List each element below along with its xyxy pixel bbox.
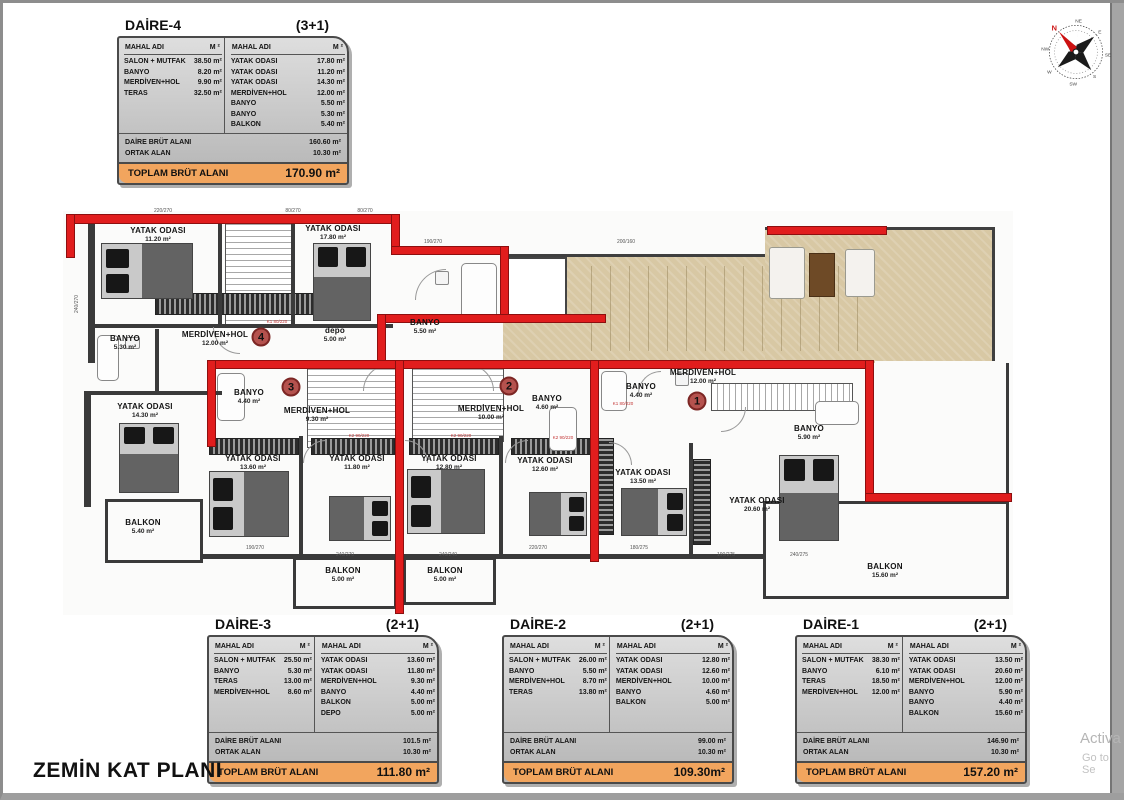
room-label: YATAK ODASI12.80 m² <box>421 455 476 471</box>
ortak-label: ORTAK ALAN <box>215 747 261 758</box>
col-header-unit: M ² <box>595 643 605 650</box>
bed <box>621 488 687 536</box>
compass-nw-label: NW <box>1041 47 1049 53</box>
table-totals: DAİRE BRÜT ALANI101.5 m² ORTAK ALAN10.30… <box>209 732 437 761</box>
table-row: MERDİVEN+HOL12.00 m² <box>909 677 1023 688</box>
red-wall-segment <box>866 361 873 501</box>
room-label: YATAK ODASI17.80 m² <box>305 225 360 241</box>
room-label: MERDİVEN+HOL10.00 m² <box>458 405 524 421</box>
toplam-value: 170.90 m² <box>285 166 340 180</box>
red-wall-segment <box>67 215 74 257</box>
table-row: TERAS18.50 m² <box>802 677 900 688</box>
room-label: depo5.00 m² <box>324 327 346 343</box>
unit-number-badge: 3 <box>282 378 301 397</box>
compass-s-label: S <box>1093 74 1096 80</box>
door-arc <box>721 407 746 432</box>
outdoor-sofa <box>845 249 875 297</box>
dimension-label: 190/270 <box>424 239 442 245</box>
bed <box>407 469 485 534</box>
table-row: BALKON5.00 m² <box>616 698 730 709</box>
wall-segment <box>499 436 503 556</box>
brut-label: DAİRE BRÜT ALANI <box>125 137 191 148</box>
bed <box>529 492 587 536</box>
balcony-5-00-a <box>293 557 397 609</box>
col-header-name: MAHAL ADI <box>803 643 842 650</box>
wall-segment <box>291 217 295 327</box>
bed <box>329 496 391 541</box>
table-row: SALON + MUTFAK38.50 m² <box>124 57 222 68</box>
table-rows: YATAK ODASI13.50 m²YATAK ODASI20.60 m²ME… <box>909 654 1023 732</box>
unit-number-badge: 1 <box>688 392 707 411</box>
room-label: MERDİVEN+HOL12.00 m² <box>670 369 736 385</box>
table-row: YATAK ODASI14.30 m² <box>231 78 345 89</box>
red-wall-segment <box>591 361 598 561</box>
table-totals: DAİRE BRÜT ALANI99.00 m² ORTAK ALAN10.30… <box>504 732 732 761</box>
table-left-column: MAHAL ADIM ² SALON + MUTFAK26.00 m²BANYO… <box>504 637 609 732</box>
dimension-label: 80/270 <box>285 208 300 214</box>
table-title: DAİRE-4 <box>125 17 181 33</box>
door-spec-label: K2 90/220 <box>451 433 472 438</box>
wall-segment <box>689 443 693 556</box>
table-title-row: DAİRE-1 (2+1) <box>795 616 1027 635</box>
room-label: YATAK ODASI13.60 m² <box>225 455 280 471</box>
table-footer: TOPLAM BRÜT ALANI 109.30m² <box>504 761 732 782</box>
table-row: YATAK ODASI17.80 m² <box>231 57 345 68</box>
col-header-name: MAHAL ADI <box>322 643 361 650</box>
floor-plan-sheet: DAİRE-4 (3+1) MAHAL ADIM ² SALON + MUTFA… <box>0 0 1124 800</box>
table-right-column: MAHAL ADIM ² YATAK ODASI12.80 m²YATAK OD… <box>609 637 732 732</box>
compass-n-label: N <box>1052 24 1057 33</box>
unit-number-badge: 2 <box>500 377 519 396</box>
room-label: YATAK ODASI11.20 m² <box>130 227 185 243</box>
table-left-column: MAHAL ADIM ² SALON + MUTFAK38.50 m²BANYO… <box>119 38 224 133</box>
table-row: YATAK ODASI20.60 m² <box>909 667 1023 678</box>
red-wall-segment <box>501 247 508 322</box>
brut-label: DAİRE BRÜT ALANI <box>510 736 576 747</box>
toplam-label: TOPLAM BRÜT ALANI <box>513 767 613 778</box>
toplam-value: 111.80 m² <box>377 765 430 779</box>
dimension-label: 240/240 <box>439 552 457 558</box>
table-row: SALON + MUTFAK25.50 m² <box>214 656 312 667</box>
table-footer: TOPLAM BRÜT ALANI 170.90 m² <box>119 162 347 183</box>
table-title-row: DAİRE-2 (2+1) <box>502 616 734 635</box>
area-table-daire3: DAİRE-3 (2+1) MAHAL ADIM ² SALON + MUTFA… <box>207 616 439 784</box>
table-row: MERDİVEN+HOL8.70 m² <box>509 677 607 688</box>
table-row: TERAS13.80 m² <box>509 688 607 699</box>
ortak-label: ORTAK ALAN <box>125 148 171 159</box>
table-row: MERDİVEN+HOL9.90 m² <box>124 78 222 89</box>
bed <box>209 471 289 537</box>
table-box: MAHAL ADIM ² SALON + MUTFAK38.30 m²BANYO… <box>795 635 1027 784</box>
table-type: (2+1) <box>974 616 1007 632</box>
door-spec-label: K2 90/220 <box>349 433 370 438</box>
toplam-value: 157.20 m² <box>963 765 1018 779</box>
ortak-label: ORTAK ALAN <box>803 747 849 758</box>
room-label: YATAK ODASI12.60 m² <box>517 457 572 473</box>
compass-w-label: W <box>1047 69 1052 75</box>
table-row: BALKON15.60 m² <box>909 709 1023 720</box>
col-header-name: MAHAL ADI <box>910 643 949 650</box>
table-row: BANYO6.10 m² <box>802 667 900 678</box>
table-box: MAHAL ADIM ² SALON + MUTFAK38.50 m²BANYO… <box>117 36 349 185</box>
table-left-column: MAHAL ADIM ² SALON + MUTFAK38.30 m²BANYO… <box>797 637 902 732</box>
table-box: MAHAL ADIM ² SALON + MUTFAK26.00 m²BANYO… <box>502 635 734 784</box>
wardrobe <box>209 438 299 455</box>
ortak-value: 10.30 m² <box>313 148 341 159</box>
room-label: BANYO4.60 m² <box>532 395 562 411</box>
table-rows: SALON + MUTFAK26.00 m²BANYO5.50 m²MERDİV… <box>509 654 607 732</box>
toplam-value: 109.30m² <box>674 765 725 779</box>
outdoor-sofa <box>769 247 805 299</box>
door-spec-label: K1 80/220 <box>267 319 288 324</box>
bathtub <box>549 407 577 451</box>
dimension-label: 180/275 <box>630 545 648 551</box>
table-footer: TOPLAM BRÜT ALANI 157.20 m² <box>797 761 1025 782</box>
wall-segment <box>203 554 763 559</box>
table-right-column: MAHAL ADIM ² YATAK ODASI13.50 m²YATAK OD… <box>902 637 1025 732</box>
red-wall-segment <box>208 361 215 446</box>
table-rows: SALON + MUTFAK38.30 m²BANYO6.10 m²TERAS1… <box>802 654 900 732</box>
terrace-arm <box>869 363 1009 501</box>
table-row: BANYO5.90 m² <box>909 688 1023 699</box>
door-arc <box>415 269 446 300</box>
table-row: YATAK ODASI12.80 m² <box>616 656 730 667</box>
table-type: (2+1) <box>386 616 419 632</box>
table-right-column: MAHAL ADIM ² YATAK ODASI13.60 m²YATAK OD… <box>314 637 437 732</box>
dimension-label: 190/275 <box>717 552 735 558</box>
room-label: YATAK ODASI11.80 m² <box>329 455 384 471</box>
table-row: YATAK ODASI13.60 m² <box>321 656 435 667</box>
table-row: SALON + MUTFAK38.30 m² <box>802 656 900 667</box>
col-header-unit: M ² <box>718 643 728 650</box>
table-rows: YATAK ODASI17.80 m²YATAK ODASI11.20 m²YA… <box>231 55 345 133</box>
table-type: (3+1) <box>296 17 329 33</box>
dimension-label: 240/270 <box>336 552 354 558</box>
bed <box>119 423 179 493</box>
wall-segment <box>218 217 222 327</box>
room-label: BALKON15.60 m² <box>867 563 902 579</box>
dimension-label: 190/270 <box>246 545 264 551</box>
col-header-unit: M ² <box>1011 643 1021 650</box>
compass-ne-label: NE <box>1075 18 1082 24</box>
table-row: DEPO5.00 m² <box>321 709 435 720</box>
room-label: BALKON5.00 m² <box>427 567 462 583</box>
table-row: BANYO4.40 m² <box>321 688 435 699</box>
wall-segment <box>299 436 303 556</box>
table-footer: TOPLAM BRÜT ALANI 111.80 m² <box>209 761 437 782</box>
wall-segment <box>88 217 95 363</box>
bathtub <box>815 401 859 425</box>
table-row: SALON + MUTFAK26.00 m² <box>509 656 607 667</box>
dimension-label: 240/270 <box>74 295 80 313</box>
table-row: TERAS32.50 m² <box>124 89 222 100</box>
dimension-label: 200/160 <box>617 239 635 245</box>
room-label: MERDİVEN+HOL12.00 m² <box>182 331 248 347</box>
outdoor-table <box>809 253 835 297</box>
bed <box>101 243 193 299</box>
col-header-unit: M ² <box>210 44 220 51</box>
table-title: DAİRE-2 <box>510 616 566 632</box>
table-row: MERDİVEN+HOL12.00 m² <box>802 688 900 699</box>
table-row: YATAK ODASI13.50 m² <box>909 656 1023 667</box>
table-row: YATAK ODASI12.60 m² <box>616 667 730 678</box>
table-title-row: DAİRE-4 (3+1) <box>117 17 349 36</box>
area-table-daire1: DAİRE-1 (2+1) MAHAL ADIM ² SALON + MUTFA… <box>795 616 1027 784</box>
ortak-value: 10.30 m² <box>403 747 431 758</box>
compass-rose-icon: N NE E SE S SW W NW <box>1039 15 1113 89</box>
table-title: DAİRE-1 <box>803 616 859 632</box>
table-title: DAİRE-3 <box>215 616 271 632</box>
col-header-unit: M ² <box>333 44 343 51</box>
table-row: MERDİVEN+HOL12.00 m² <box>231 89 345 100</box>
wall-segment <box>91 324 393 328</box>
table-left-column: MAHAL ADIM ² SALON + MUTFAK25.50 m²BANYO… <box>209 637 314 732</box>
brut-value: 160.60 m² <box>309 137 341 148</box>
door-spec-label: K2 90/220 <box>553 435 574 440</box>
dimension-label: 220/270 <box>529 545 547 551</box>
room-label: BANYO4.40 m² <box>626 383 656 399</box>
brut-value: 146.90 m² <box>987 736 1019 747</box>
brut-value: 99.00 m² <box>698 736 726 747</box>
toplam-label: TOPLAM BRÜT ALANI <box>806 767 906 778</box>
ortak-label: ORTAK ALAN <box>510 747 556 758</box>
door-spec-label: K1 80/220 <box>613 401 634 406</box>
table-row: BALKON5.00 m² <box>321 698 435 709</box>
brut-value: 101.5 m² <box>403 736 431 747</box>
table-row: BANYO5.30 m² <box>231 110 345 121</box>
table-row: BANYO5.30 m² <box>214 667 312 678</box>
table-row: BANYO8.20 m² <box>124 68 222 79</box>
ortak-value: 10.30 m² <box>698 747 726 758</box>
dimension-label: 80/270 <box>357 208 372 214</box>
watermark-line2: Go to Se <box>1082 752 1124 776</box>
bed <box>313 243 371 321</box>
table-title-row: DAİRE-3 (2+1) <box>207 616 439 635</box>
red-wall-segment <box>208 361 873 368</box>
room-label: BANYO5.90 m² <box>794 425 824 441</box>
table-box: MAHAL ADIM ² SALON + MUTFAK25.50 m²BANYO… <box>207 635 439 784</box>
compass-sw-label: SW <box>1069 81 1077 87</box>
room-label: YATAK ODASI20.60 m² <box>729 497 784 513</box>
table-totals: DAİRE BRÜT ALANI146.90 m² ORTAK ALAN10.3… <box>797 732 1025 761</box>
unit-number-badge: 4 <box>252 328 271 347</box>
wall-segment <box>84 391 222 395</box>
table-rows: YATAK ODASI13.60 m²YATAK ODASI11.80 m²ME… <box>321 654 435 732</box>
table-totals: DAİRE BRÜT ALANI160.60 m² ORTAK ALAN10.3… <box>119 133 347 162</box>
col-header-unit: M ² <box>888 643 898 650</box>
room-label: YATAK ODASI14.30 m² <box>117 403 172 419</box>
bed <box>779 455 839 541</box>
col-header-unit: M ² <box>300 643 310 650</box>
table-row: BALKON5.40 m² <box>231 120 345 131</box>
table-row: BANYO5.50 m² <box>509 667 607 678</box>
col-header-name: MAHAL ADI <box>232 44 271 51</box>
table-row: YATAK ODASI11.80 m² <box>321 667 435 678</box>
door-arc <box>609 442 632 465</box>
table-row: MERDİVEN+HOL9.30 m² <box>321 677 435 688</box>
toplam-label: TOPLAM BRÜT ALANI <box>128 168 228 179</box>
red-wall-segment <box>768 227 886 234</box>
ortak-value: 10.30 m² <box>991 747 1019 758</box>
table-rows: SALON + MUTFAK38.50 m²BANYO8.20 m²MERDİV… <box>124 55 222 133</box>
page-title: ZEMİN KAT PLANI <box>33 759 222 783</box>
red-wall-segment <box>396 361 403 613</box>
table-right-column: MAHAL ADIM ² YATAK ODASI17.80 m²YATAK OD… <box>224 38 347 133</box>
area-table-daire4: DAİRE-4 (3+1) MAHAL ADIM ² SALON + MUTFA… <box>117 17 349 185</box>
brut-label: DAİRE BRÜT ALANI <box>215 736 281 747</box>
dimension-label: 240/275 <box>790 552 808 558</box>
wall-segment <box>155 329 159 391</box>
table-row: TERAS13.00 m² <box>214 677 312 688</box>
table-row: MERDİVEN+HOL10.00 m² <box>616 677 730 688</box>
table-rows: SALON + MUTFAK25.50 m²BANYO5.30 m²TERAS1… <box>214 654 312 732</box>
col-header-name: MAHAL ADI <box>125 44 164 51</box>
compass-e-label: E <box>1098 30 1101 36</box>
table-row: MERDİVEN+HOL8.60 m² <box>214 688 312 699</box>
wardrobe <box>693 459 711 545</box>
dimension-label: 220/270 <box>154 208 172 214</box>
toplam-label: TOPLAM BRÜT ALANI <box>218 767 318 778</box>
light-well <box>505 257 567 319</box>
red-wall-segment <box>67 215 399 223</box>
room-label: BALKON5.00 m² <box>325 567 360 583</box>
area-table-daire2: DAİRE-2 (2+1) MAHAL ADIM ² SALON + MUTFA… <box>502 616 734 784</box>
room-label: YATAK ODASI13.50 m² <box>615 469 670 485</box>
room-label: BANYO4.40 m² <box>234 389 264 405</box>
compass-se-label: SE <box>1105 52 1111 58</box>
bathtub <box>461 263 497 319</box>
table-row: BANYO4.40 m² <box>909 698 1023 709</box>
table-row: YATAK ODASI11.20 m² <box>231 68 345 79</box>
table-row: BANYO5.50 m² <box>231 99 345 110</box>
room-label: BALKON5.40 m² <box>125 519 160 535</box>
col-header-name: MAHAL ADI <box>510 643 549 650</box>
brut-label: DAİRE BRÜT ALANI <box>803 736 869 747</box>
red-wall-segment <box>392 247 508 254</box>
wall-segment <box>84 393 91 507</box>
col-header-name: MAHAL ADI <box>215 643 254 650</box>
room-label: BANYO5.30 m² <box>110 335 140 351</box>
watermark-line1: Activa <box>1080 730 1121 747</box>
frame-right-bar <box>1110 3 1124 793</box>
table-type: (2+1) <box>681 616 714 632</box>
room-label: BANYO5.50 m² <box>410 319 440 335</box>
table-row: BANYO4.60 m² <box>616 688 730 699</box>
table-rows: YATAK ODASI12.80 m²YATAK ODASI12.60 m²ME… <box>616 654 730 732</box>
col-header-unit: M ² <box>423 643 433 650</box>
red-wall-segment <box>866 494 1011 501</box>
col-header-name: MAHAL ADI <box>617 643 656 650</box>
room-label: MERDİVEN+HOL9.30 m² <box>284 407 350 423</box>
floor-plan-drawing: YATAK ODASI11.20 m² YATAK ODASI17.80 m² … <box>63 211 1013 615</box>
